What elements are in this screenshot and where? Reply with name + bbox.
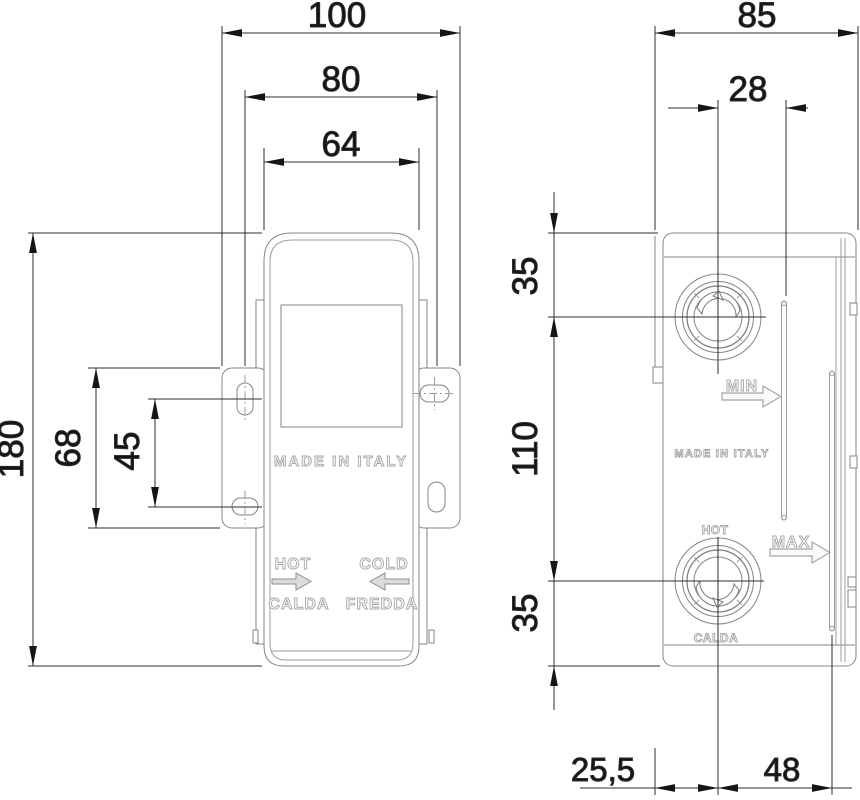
side-view: MIN MAX MADE IN ITALY HOT CALDA [653,233,857,666]
side-clip-right-2 [850,456,857,468]
dim-100-label: 100 [308,0,366,35]
dim-35-bottom-label: 35 [506,594,545,633]
dim-45-label: 45 [108,432,147,471]
cold-label-front: COLD [359,556,408,573]
dim-25-5-label: 25,5 [571,751,635,788]
fredda-label-front: FREDDA [346,596,419,613]
dim-110-label: 110 [506,421,545,477]
technical-drawing-page: MADE IN ITALY HOT CALDA COLD FREDDA [0,0,860,800]
plate-notch-right [429,630,434,643]
hot-label-front: HOT [275,556,312,573]
dim-28-label: 28 [729,70,768,109]
dim-180-label: 180 [0,420,31,478]
side-clip-right-3 [848,577,856,587]
hot-label-side: HOT [702,523,729,537]
dim-80-label: 80 [322,60,361,99]
side-clip-right-1 [850,303,857,315]
dim-side-depth: 85 [655,0,858,230]
dim-48-label: 48 [764,751,801,788]
made-in-italy-side-label: MADE IN ITALY [674,448,769,460]
mounting-tab-right [414,368,460,528]
side-clip-right-4 [848,590,856,607]
front-view: MADE IN ITALY HOT CALDA COLD FREDDA [222,233,460,666]
side-clip-left [653,367,663,383]
calda-label-front: CALDA [269,596,330,613]
made-in-italy-front-label: MADE IN ITALY [274,453,408,470]
plate-notch-left [253,630,258,643]
dim-front-body-width: 64 [264,125,419,230]
technical-drawing: MADE IN ITALY HOT CALDA COLD FREDDA [0,0,860,800]
calda-label-side: CALDA [694,631,739,645]
dim-85-label: 85 [738,0,777,35]
dim-68-label: 68 [49,429,88,468]
dim-35-top-label: 35 [506,257,545,296]
dim-64-label: 64 [322,125,361,164]
